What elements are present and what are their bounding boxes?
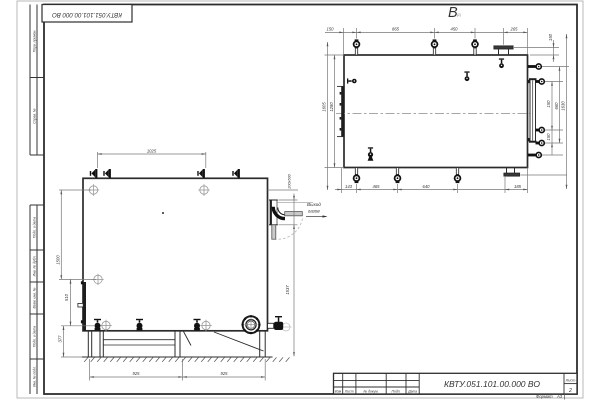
- svg-text:1500: 1500: [55, 255, 60, 265]
- svg-text:925: 925: [133, 371, 141, 376]
- svg-text:185: 185: [514, 184, 522, 189]
- svg-text:200х600: 200х600: [287, 173, 291, 189]
- svg-text:1537: 1537: [285, 285, 290, 295]
- svg-text:Инв. № подл.: Инв. № подл.: [33, 366, 37, 387]
- svg-text:377: 377: [58, 335, 63, 343]
- svg-text:510: 510: [64, 293, 69, 301]
- svg-text:Инв. № дубл.: Инв. № дубл.: [33, 256, 37, 277]
- svg-text:1630: 1630: [561, 101, 566, 111]
- svg-text:Лист: Лист: [565, 378, 576, 382]
- svg-text:Формат: Формат: [536, 394, 553, 399]
- svg-text:КВТУ.051.101.00.000 ВО: КВТУ.051.101.00.000 ВО: [52, 11, 122, 18]
- svg-text:А3: А3: [556, 394, 563, 399]
- svg-text:Подп. и дата: Подп. и дата: [33, 217, 37, 238]
- svg-text:Справ. №: Справ. №: [33, 108, 37, 124]
- svg-text:Подп.: Подп.: [391, 390, 400, 394]
- svg-text:640: 640: [423, 184, 431, 189]
- svg-text:865: 865: [392, 27, 400, 32]
- svg-text:Взам. инв. №: Взам. инв. №: [33, 287, 37, 308]
- svg-text:150: 150: [548, 33, 553, 41]
- svg-text:Перв. примен.: Перв. примен.: [33, 30, 37, 53]
- svg-text:Изм: Изм: [335, 390, 342, 394]
- svg-text:Выход: Выход: [307, 202, 321, 207]
- svg-text:Подп. и дата: Подп. и дата: [33, 326, 37, 347]
- svg-text:925: 925: [221, 371, 229, 376]
- svg-text:450: 450: [451, 27, 459, 32]
- svg-text:1025: 1025: [147, 148, 157, 153]
- svg-text:1605: 1605: [322, 102, 327, 112]
- svg-text:143: 143: [345, 184, 353, 189]
- svg-text:150: 150: [546, 133, 551, 141]
- svg-text:150: 150: [327, 27, 335, 32]
- svg-text:газов: газов: [308, 209, 320, 214]
- svg-text:150: 150: [546, 100, 551, 108]
- svg-text:(1): (1): [457, 13, 461, 17]
- svg-text:Дата: Дата: [407, 390, 417, 394]
- svg-text:465: 465: [373, 184, 381, 189]
- svg-text:2: 2: [568, 388, 572, 394]
- svg-text:265: 265: [510, 27, 519, 32]
- svg-text:660: 660: [554, 102, 559, 110]
- svg-text:Лист: Лист: [344, 390, 354, 394]
- svg-text:1280: 1280: [329, 102, 334, 112]
- svg-text:КВТУ.051.101.00.000 ВО: КВТУ.051.101.00.000 ВО: [444, 379, 540, 389]
- svg-text:№ докум.: № докум.: [364, 390, 379, 394]
